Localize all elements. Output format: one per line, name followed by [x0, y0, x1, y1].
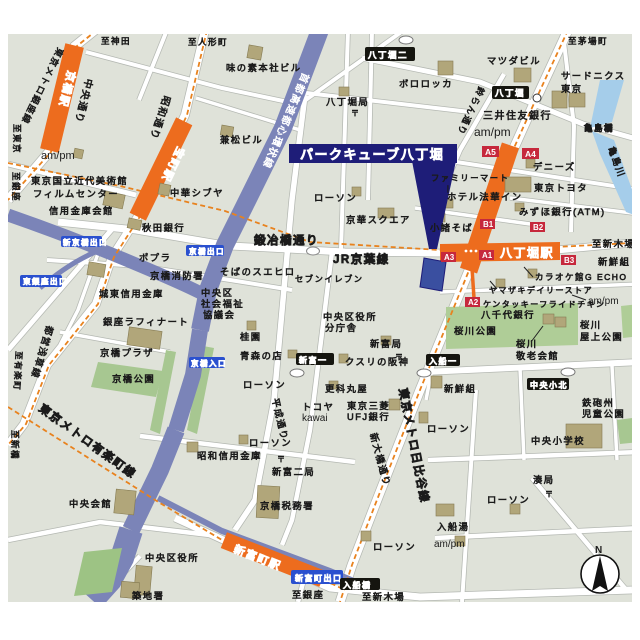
svg-text:B1: B1 [483, 220, 494, 229]
svg-text:ローソン: ローソン [487, 495, 530, 505]
svg-text:N: N [595, 545, 602, 556]
svg-text:亀島橋: 亀島橋 [584, 123, 614, 133]
svg-text:A1: A1 [482, 251, 493, 260]
svg-text:ローソン: ローソン [314, 193, 357, 203]
svg-text:至新橋: 至新橋 [10, 430, 20, 460]
svg-text:至人形町: 至人形町 [188, 37, 228, 47]
svg-text:八千代銀行: 八千代銀行 [481, 309, 535, 320]
svg-text:東京: 東京 [561, 83, 583, 94]
svg-text:デニーズ: デニーズ [533, 161, 576, 172]
svg-text:〒: 〒 [545, 490, 555, 499]
svg-text:桂園: 桂園 [240, 331, 262, 342]
svg-text:トコヤ: トコヤ [302, 402, 334, 412]
svg-text:UFJ銀行: UFJ銀行 [347, 411, 390, 422]
svg-text:新鮮組: 新鮮組 [598, 256, 630, 267]
svg-text:湊局: 湊局 [533, 474, 555, 485]
svg-text:更科丸屋: 更科丸屋 [325, 383, 368, 394]
svg-text:味の素本社ビル: 味の素本社ビル [226, 62, 302, 73]
svg-text:セブンイレブン: セブンイレブン [295, 274, 364, 284]
svg-text:三井住友銀行: 三井住友銀行 [483, 109, 552, 122]
svg-text:信用金庫会館: 信用金庫会館 [49, 205, 114, 216]
svg-text:京橋入口: 京橋入口 [191, 358, 227, 368]
svg-text:am/pm: am/pm [588, 296, 619, 307]
svg-text:A4: A4 [525, 149, 536, 159]
svg-text:ローソン: ローソン [249, 438, 292, 448]
svg-text:京橋税務署: 京橋税務署 [260, 500, 314, 511]
svg-text:kawai: kawai [302, 413, 328, 424]
svg-text:JR京葉線: JR京葉線 [333, 252, 390, 266]
svg-text:A5: A5 [485, 147, 496, 157]
svg-text:新富一: 新富一 [299, 355, 328, 365]
svg-text:至有楽町: 至有楽町 [12, 351, 24, 391]
svg-text:八丁堀二: 八丁堀二 [367, 50, 408, 60]
svg-text:ファミリーマート: ファミリーマート [431, 173, 509, 183]
svg-text:桜川公園: 桜川公園 [454, 325, 497, 336]
svg-text:京橋公園: 京橋公園 [112, 373, 155, 384]
svg-text:屋上公園: 屋上公園 [580, 332, 623, 342]
svg-text:フィルムセンター: フィルムセンター [33, 189, 119, 199]
svg-text:入船一: 入船一 [428, 356, 458, 366]
svg-text:八丁堀: 八丁堀 [494, 88, 525, 98]
svg-text:〒: 〒 [277, 455, 287, 464]
svg-text:鍛冶橋通り: 鍛冶橋通り [254, 233, 319, 247]
svg-text:ローソン: ローソン [373, 542, 416, 552]
svg-text:ホテル法華イン: ホテル法華イン [447, 191, 523, 202]
svg-text:ヤマザキデイリーストア: ヤマザキデイリーストア [489, 285, 593, 295]
svg-text:昭和信用金庫: 昭和信用金庫 [197, 450, 262, 461]
svg-text:城東信用金庫: 城東信用金庫 [99, 288, 164, 299]
svg-text:中央会館: 中央会館 [69, 498, 112, 509]
svg-text:至新木場: 至新木場 [592, 238, 635, 249]
svg-text:八丁堀局: 八丁堀局 [326, 97, 369, 107]
svg-text:中央区: 中央区 [201, 287, 233, 298]
svg-text:中央区役所: 中央区役所 [145, 552, 199, 563]
svg-text:入船湯: 入船湯 [437, 521, 469, 532]
svg-text:築地署: 築地署 [132, 590, 164, 601]
svg-text:中央区役所: 中央区役所 [323, 311, 377, 322]
svg-text:東銀座出口: 東銀座出口 [23, 276, 68, 286]
svg-text:B3: B3 [564, 256, 575, 265]
svg-text:ローソン: ローソン [427, 424, 470, 434]
svg-text:京橋消防署: 京橋消防署 [150, 270, 204, 281]
svg-text:兼松ビル: 兼松ビル [220, 134, 263, 145]
svg-text:至茅場町: 至茅場町 [568, 36, 608, 46]
svg-text:みずほ銀行(ATM): みずほ銀行(ATM) [519, 206, 606, 217]
svg-text:〒: 〒 [351, 109, 361, 118]
svg-text:中央小北: 中央小北 [530, 380, 568, 390]
svg-text:社会福祉: 社会福祉 [201, 298, 244, 309]
svg-text:新富二局: 新富二局 [272, 466, 315, 477]
svg-text:新富局: 新富局 [370, 338, 402, 349]
svg-text:京橋出口: 京橋出口 [189, 246, 225, 256]
svg-text:秋田銀行: 秋田銀行 [142, 222, 185, 233]
svg-text:カラオケ館G ECHO: カラオケ館G ECHO [535, 272, 628, 282]
svg-text:小諸そば: 小諸そば [430, 222, 473, 233]
svg-text:A2: A2 [468, 298, 479, 307]
svg-text:銀座ラフィナート: 銀座ラフィナート [103, 316, 189, 327]
svg-text:八丁堀駅: 八丁堀駅 [499, 245, 554, 260]
svg-text:至銀座: 至銀座 [292, 589, 324, 600]
svg-text:パークキューブ八丁堀: パークキューブ八丁堀 [300, 147, 444, 162]
svg-text:敬老会館: 敬老会館 [516, 350, 559, 361]
svg-text:桜川: 桜川 [580, 319, 602, 330]
svg-text:マツダビル: マツダビル [487, 55, 541, 66]
svg-text:ボロロッカ: ボロロッカ [399, 79, 453, 89]
svg-text:am/pm: am/pm [474, 125, 511, 139]
svg-text:A3: A3 [444, 253, 455, 262]
svg-text:新富町出口: 新富町出口 [295, 573, 343, 583]
svg-text:児童公園: 児童公園 [582, 408, 625, 419]
svg-text:京橋プラザ: 京橋プラザ [100, 347, 154, 358]
svg-text:そばのスエヒロ: そばのスエヒロ [220, 267, 296, 277]
svg-text:am/pm: am/pm [41, 150, 75, 162]
svg-text:サードニクス: サードニクス [561, 71, 626, 81]
svg-text:ポプラ: ポプラ [139, 253, 171, 263]
svg-text:am/pm: am/pm [434, 539, 465, 550]
svg-text:新鮮組: 新鮮組 [444, 383, 476, 394]
svg-text:〒: 〒 [395, 353, 405, 362]
svg-text:東京国立近代美術館: 東京国立近代美術館 [31, 175, 128, 186]
svg-text:中央小学校: 中央小学校 [531, 435, 585, 446]
svg-text:青森の店: 青森の店 [240, 350, 283, 361]
svg-text:東京三菱: 東京三菱 [347, 400, 390, 411]
svg-text:入船橋: 入船橋 [342, 580, 372, 590]
svg-text:|: | [447, 186, 450, 193]
svg-text:協議会: 協議会 [203, 309, 235, 320]
svg-text:京華スクエア: 京華スクエア [346, 214, 411, 225]
svg-text:至東京: 至東京 [12, 124, 22, 154]
svg-text:新京橋出口: 新京橋出口 [63, 237, 108, 247]
svg-text:B2: B2 [533, 223, 544, 232]
svg-text:ローソン: ローソン [243, 380, 286, 390]
svg-text:至新木場: 至新木場 [362, 591, 405, 602]
svg-text:至銀座: 至銀座 [11, 172, 21, 202]
svg-text:東京トヨタ: 東京トヨタ [534, 182, 588, 193]
svg-text:分庁舎: 分庁舎 [325, 322, 357, 333]
svg-text:中華シブヤ: 中華シブヤ [170, 187, 224, 198]
svg-text:桜川: 桜川 [516, 338, 538, 349]
svg-text:至神田: 至神田 [101, 36, 131, 46]
svg-text:鉄砲州: 鉄砲州 [582, 397, 614, 408]
